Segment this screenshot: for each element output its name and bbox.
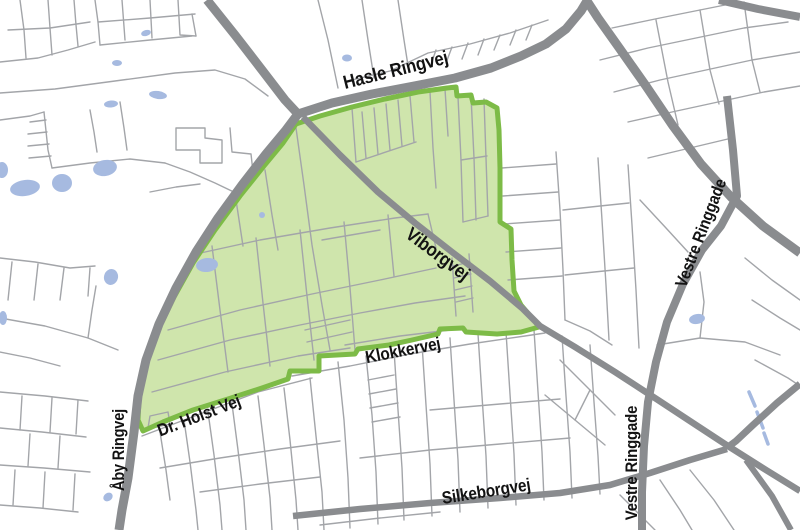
street xyxy=(366,356,378,524)
pond xyxy=(259,212,265,218)
street xyxy=(43,472,45,508)
street xyxy=(0,112,44,120)
street xyxy=(76,400,78,434)
road-label-vestre-ringgade-north: Vestre Ringgade xyxy=(673,176,731,290)
street xyxy=(284,388,298,530)
pond xyxy=(102,491,115,503)
street xyxy=(230,128,253,172)
street xyxy=(120,102,127,150)
street xyxy=(660,480,692,530)
street xyxy=(508,276,562,280)
street xyxy=(74,0,78,46)
street xyxy=(657,338,780,355)
street xyxy=(34,264,38,300)
pond xyxy=(342,55,352,62)
street xyxy=(98,14,195,22)
pond xyxy=(102,267,120,286)
stream xyxy=(764,433,768,444)
street xyxy=(192,14,196,36)
street xyxy=(0,352,60,366)
road-label-silkeborgvej: Silkeborgvej xyxy=(441,475,532,508)
street xyxy=(232,404,246,530)
pond xyxy=(112,60,122,66)
street xyxy=(208,412,222,530)
road-label-aby-ringvej: Åby Ringvej xyxy=(110,409,128,491)
street xyxy=(744,2,760,92)
street xyxy=(503,192,558,196)
street xyxy=(369,389,396,394)
street xyxy=(8,262,12,300)
street xyxy=(565,268,634,275)
pond xyxy=(52,174,72,192)
pond xyxy=(0,311,7,325)
street xyxy=(100,36,192,45)
street xyxy=(700,10,719,104)
pond xyxy=(149,90,168,100)
street xyxy=(700,272,704,338)
street xyxy=(745,258,800,300)
street xyxy=(13,470,15,505)
street xyxy=(0,42,95,62)
street xyxy=(73,474,75,510)
street xyxy=(318,0,338,88)
street xyxy=(176,128,222,163)
street xyxy=(590,345,600,494)
street xyxy=(30,120,46,122)
stream xyxy=(749,392,755,406)
street xyxy=(506,248,561,252)
street xyxy=(0,392,88,401)
street xyxy=(394,350,404,520)
street xyxy=(150,184,200,192)
street xyxy=(504,220,560,224)
street xyxy=(50,398,52,432)
street xyxy=(0,70,268,96)
map-canvas[interactable]: Hasle RingvejViborgvejKlokkervejDr. Hols… xyxy=(0,0,800,530)
street xyxy=(360,438,570,458)
pond xyxy=(0,162,8,178)
street xyxy=(502,164,556,168)
street xyxy=(88,268,90,296)
street xyxy=(28,144,49,146)
road-label-vestre-ringgade-south: Vestre Ringgade xyxy=(623,405,641,520)
street xyxy=(29,156,51,158)
street xyxy=(612,2,740,28)
street xyxy=(165,163,238,194)
street xyxy=(372,417,400,422)
street xyxy=(60,268,64,300)
street xyxy=(556,152,565,320)
street xyxy=(20,396,22,430)
street xyxy=(28,132,47,134)
street xyxy=(184,420,198,530)
street xyxy=(628,165,639,348)
pond xyxy=(140,29,151,37)
pond xyxy=(104,100,119,108)
street xyxy=(752,300,800,330)
street xyxy=(422,344,432,516)
street xyxy=(575,390,590,420)
street xyxy=(28,434,30,466)
street xyxy=(338,362,350,528)
street xyxy=(368,375,394,380)
street xyxy=(690,470,734,530)
street xyxy=(0,505,78,512)
street xyxy=(640,200,688,252)
pond xyxy=(9,178,41,198)
street xyxy=(755,360,800,386)
street xyxy=(310,378,324,530)
street xyxy=(370,403,398,408)
street xyxy=(90,110,97,152)
vestre-ringgade-road xyxy=(642,96,737,530)
street xyxy=(58,436,60,468)
street xyxy=(598,158,609,340)
street xyxy=(563,203,629,210)
street xyxy=(88,286,96,338)
street xyxy=(0,428,86,437)
street xyxy=(565,320,612,345)
street xyxy=(0,318,118,350)
top-right-corner-road xyxy=(719,0,800,17)
street xyxy=(0,465,90,472)
street xyxy=(430,399,560,410)
street xyxy=(0,258,95,268)
street xyxy=(258,396,272,530)
map-view[interactable]: Hasle RingvejViborgvejKlokkervejDr. Hols… xyxy=(0,0,800,530)
street xyxy=(534,330,544,500)
